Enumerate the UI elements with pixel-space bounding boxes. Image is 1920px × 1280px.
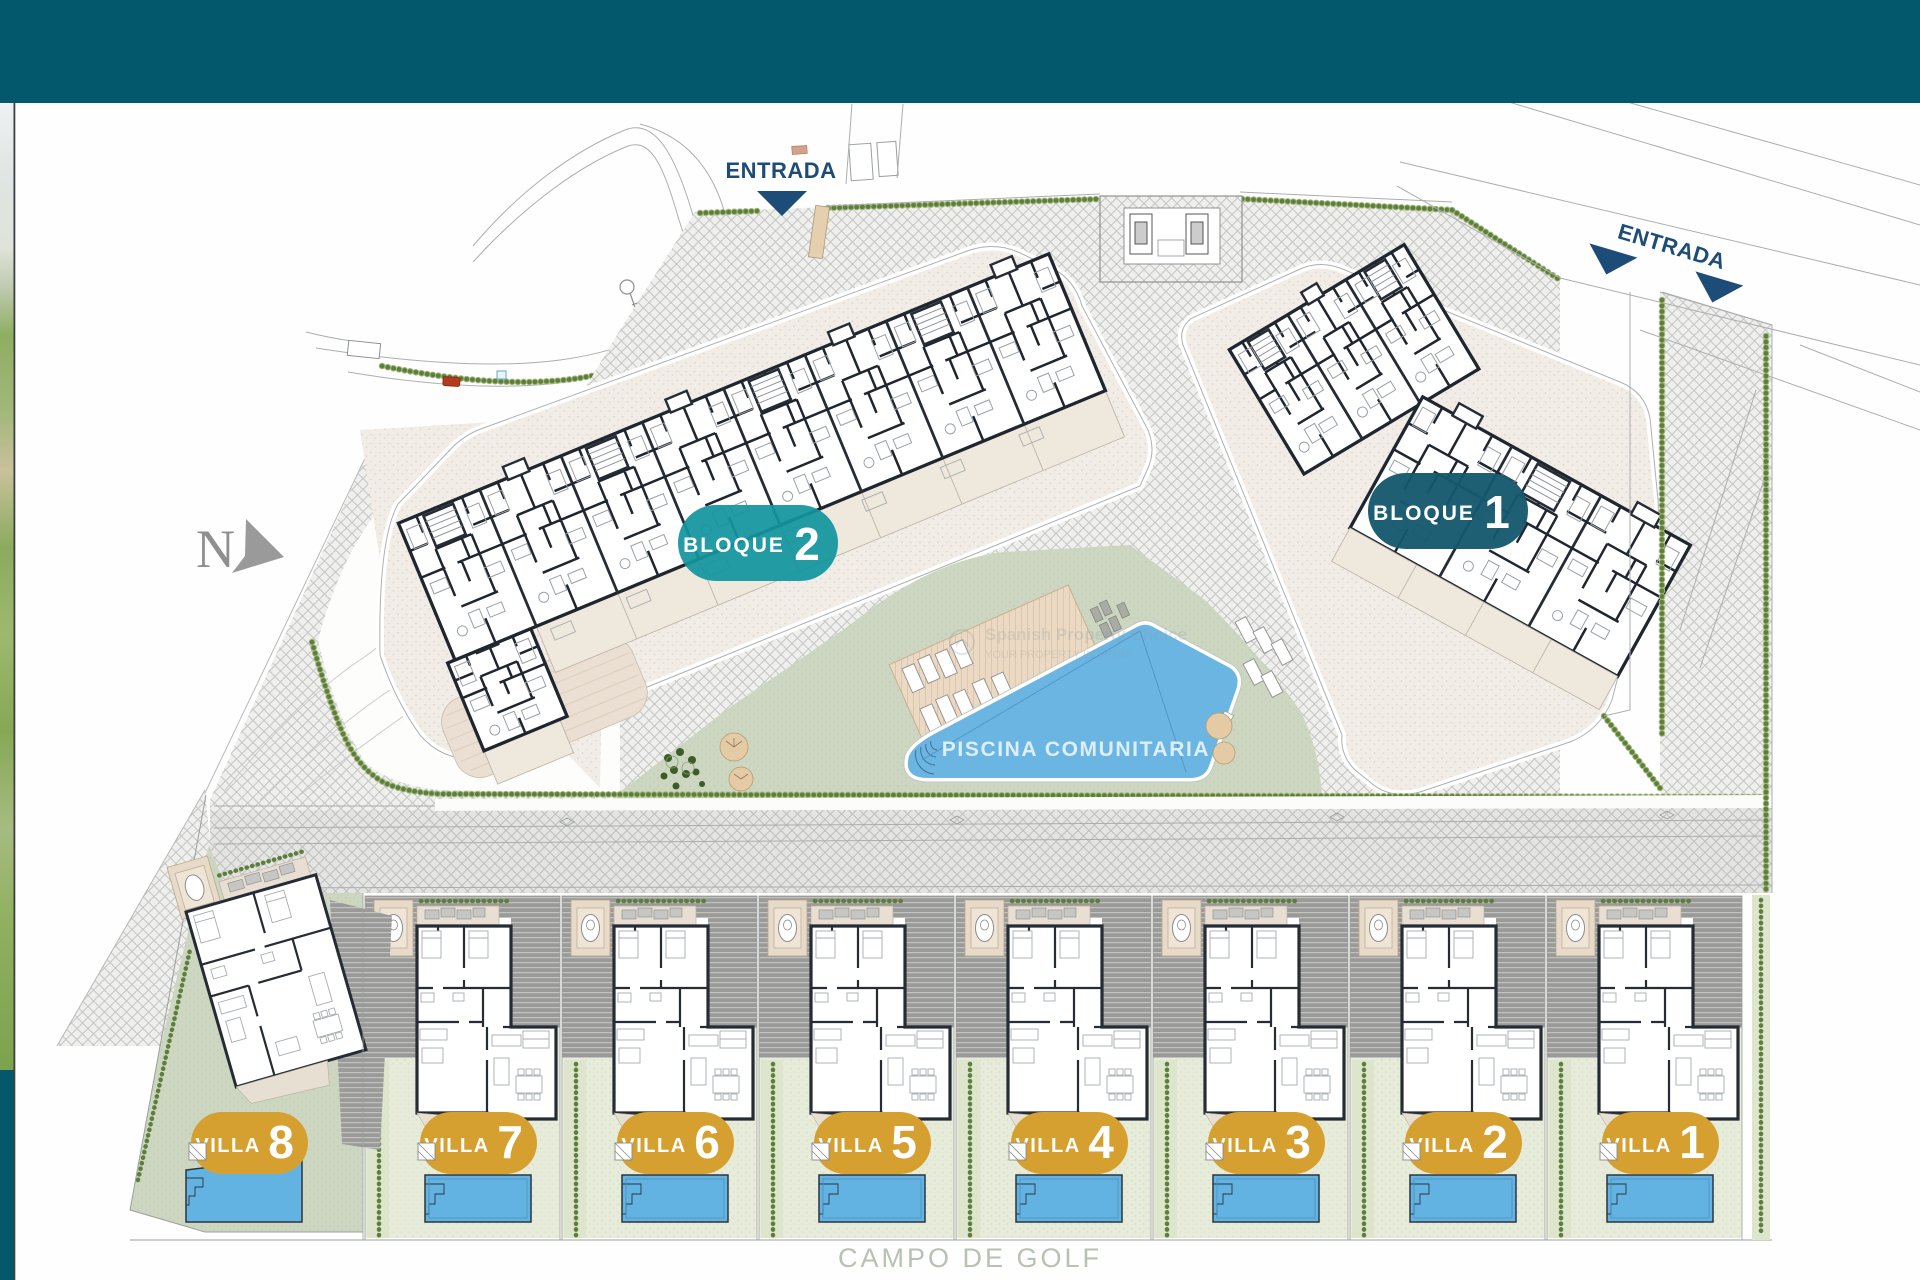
svg-text:6: 6 (694, 1116, 720, 1168)
svg-text:2: 2 (794, 518, 820, 570)
svg-text:8: 8 (268, 1116, 294, 1168)
svg-text:3: 3 (1285, 1116, 1311, 1168)
svg-text:Spanish Property Choice: Spanish Property Choice (985, 625, 1187, 644)
svg-text:N: N (196, 519, 235, 579)
svg-text:ENTRADA: ENTRADA (725, 158, 836, 183)
svg-text:2: 2 (1482, 1116, 1508, 1168)
svg-text:4: 4 (1088, 1116, 1114, 1168)
svg-text:BLOQUE: BLOQUE (683, 534, 785, 557)
svg-text:CAMPO DE GOLF: CAMPO DE GOLF (838, 1243, 1102, 1273)
svg-text:5: 5 (891, 1116, 917, 1168)
svg-text:YOUR PROPERTY IN SPAIN: YOUR PROPERTY IN SPAIN (985, 649, 1129, 661)
svg-text:PISCINA COMUNITARIA: PISCINA COMUNITARIA (942, 738, 1210, 761)
svg-text:BLOQUE: BLOQUE (1373, 502, 1475, 525)
svg-text:7: 7 (497, 1116, 523, 1168)
svg-text:1: 1 (1679, 1116, 1705, 1168)
svg-text:1: 1 (1484, 486, 1510, 538)
